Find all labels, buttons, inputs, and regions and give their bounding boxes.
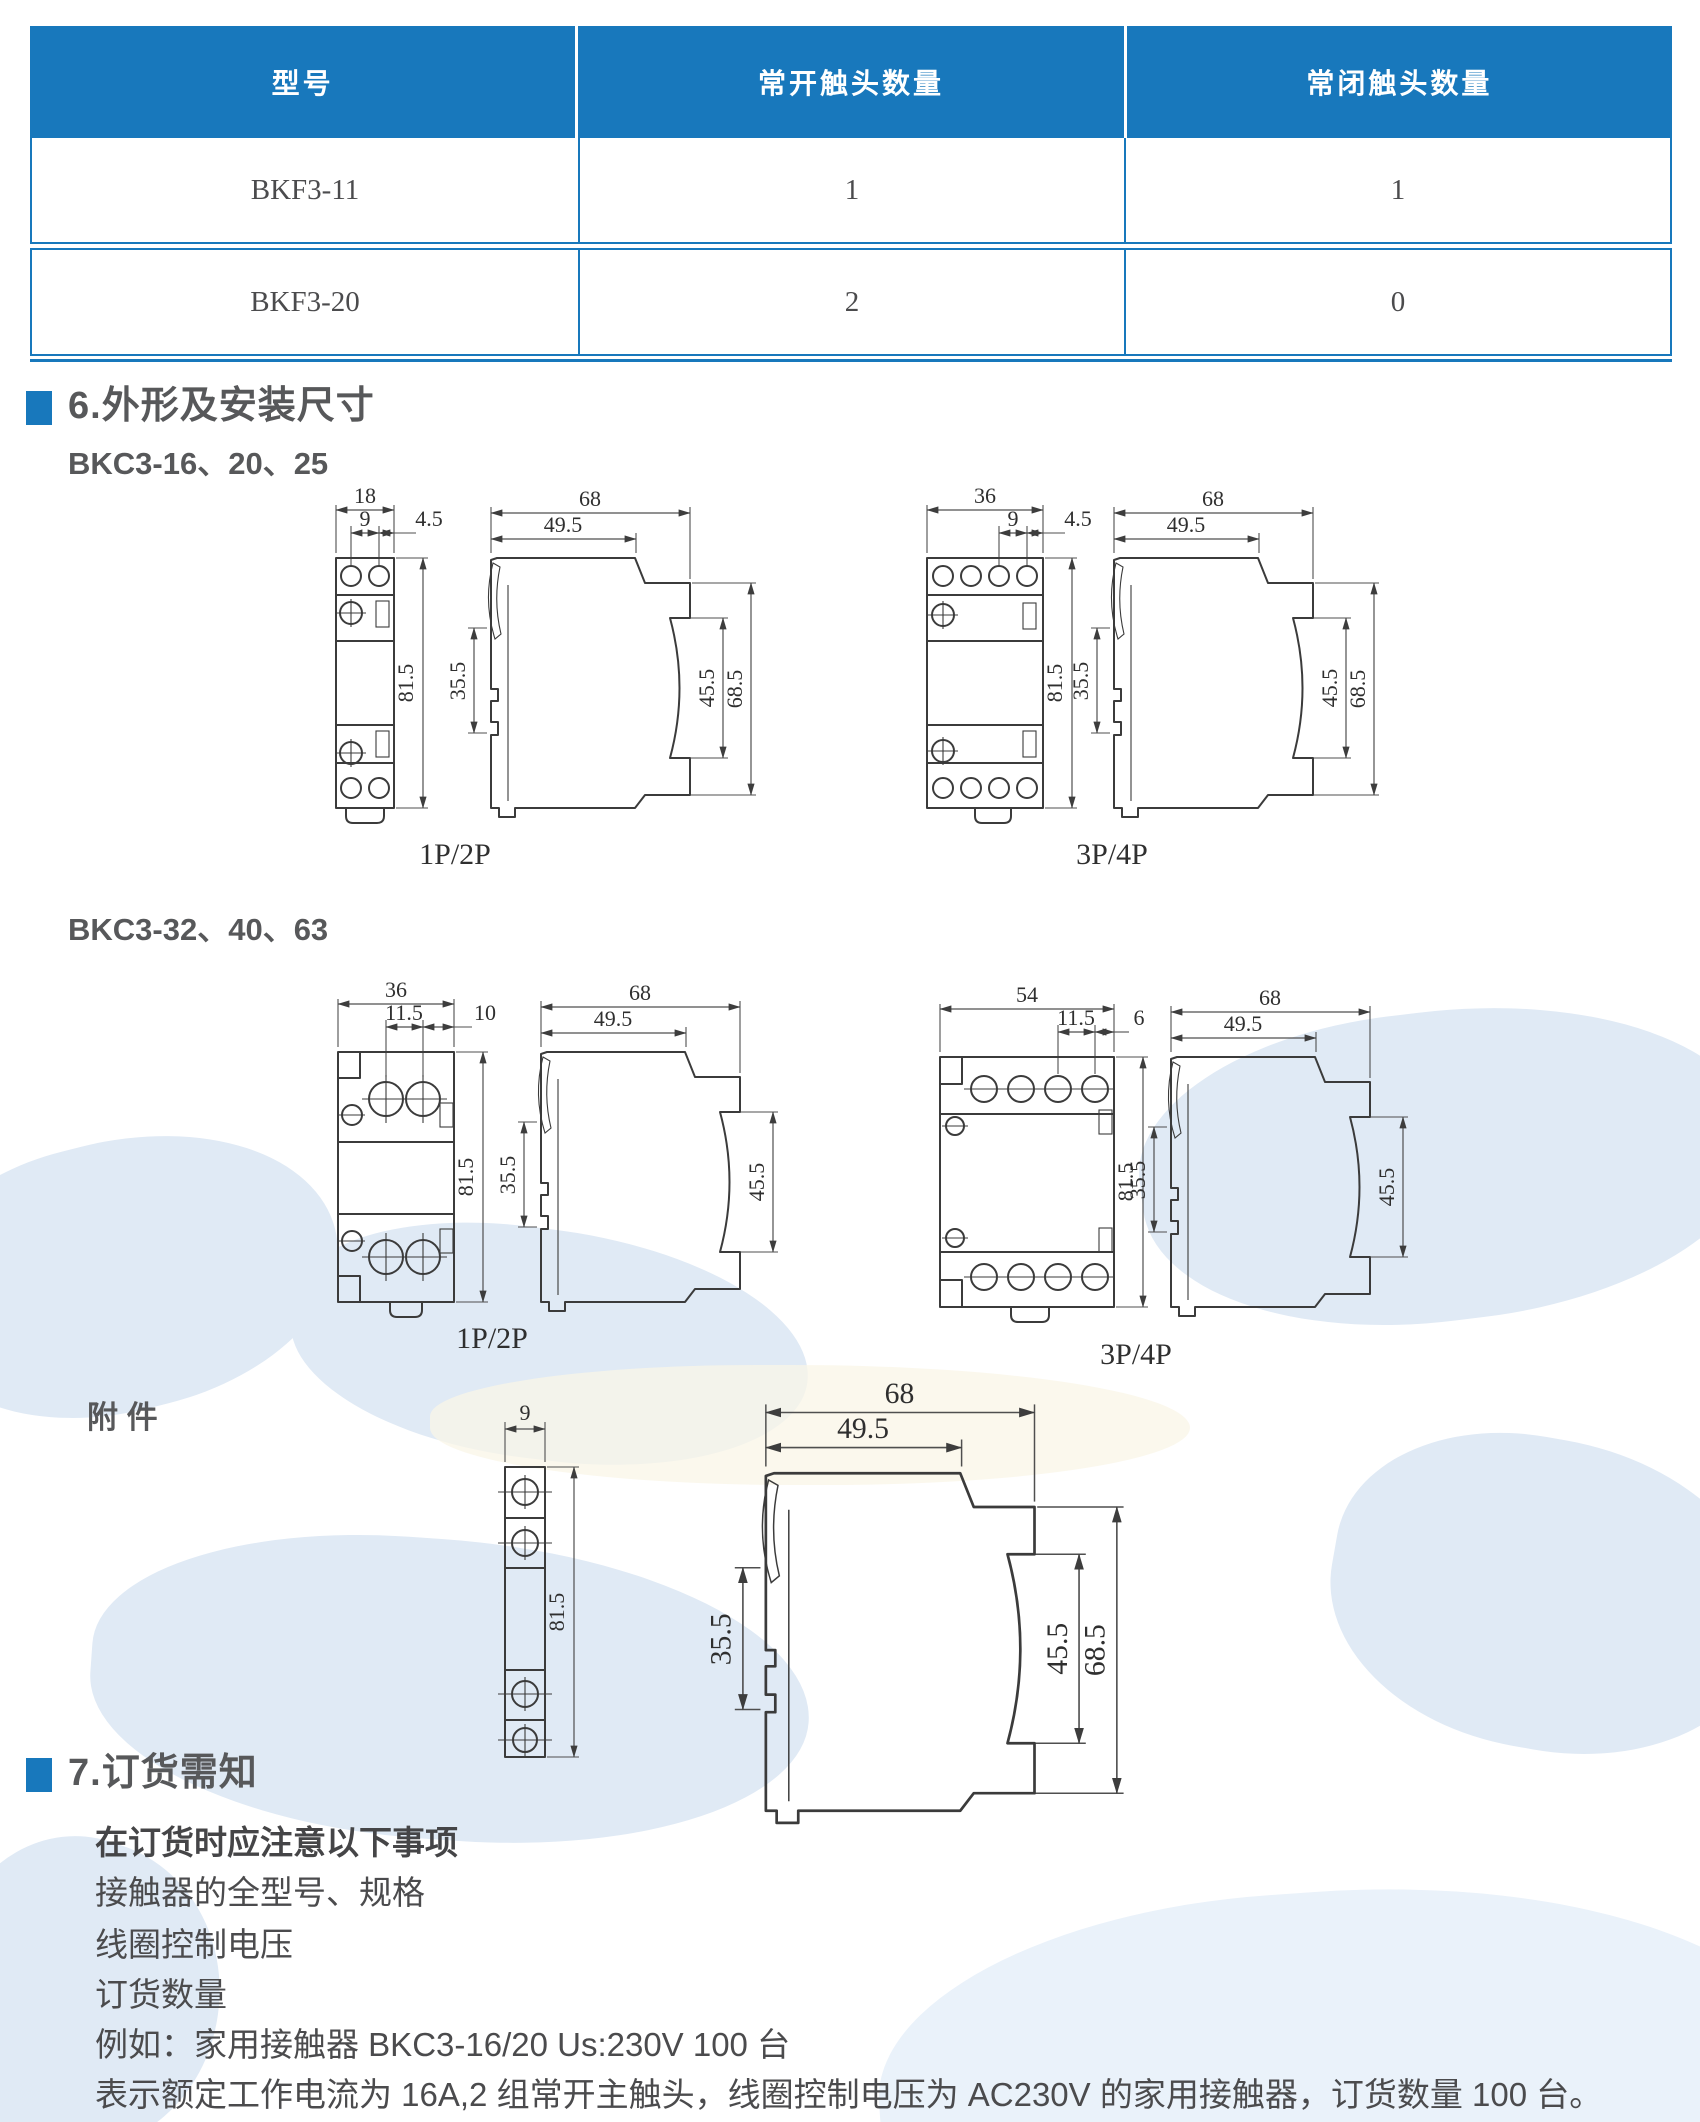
col-header-nc-contacts: 常闭触头数量 [1127,26,1672,138]
model-subheading-1: BKC3-16、20、25 [68,438,328,483]
svg-text:9: 9 [1008,506,1019,531]
side-view-drawing-3p4p-large: 68 49.5 35.5 45.5 [1115,962,1445,1362]
cell-model: BKF3-20 [32,250,578,354]
accessory-side-view: 68 49.5 35.5 45.5 68.5 [690,1345,1136,1885]
svg-text:36: 36 [385,977,407,1002]
contact-table-header: 型号 常开触头数量 常闭触头数量 [30,26,1672,138]
model-subheading-2: BKC3-32、40、63 [68,904,328,949]
svg-text:49.5: 49.5 [1167,512,1206,537]
svg-text:35.5: 35.5 [445,662,470,701]
ordering-item-line: 接触器的全型号、规格 [95,1866,425,1914]
side-view-drawing-3p4p: 68 49.5 35.5 45.5 68.5 [1058,463,1388,863]
section-7-heading: 7.订货需知 [26,1753,258,1795]
cell-nc-count: 1 [1124,138,1670,242]
col-header-model: 型号 [30,26,575,138]
pole-label-1p2p-large: 1P/2P [412,1322,572,1356]
cell-model: BKF3-11 [32,138,578,242]
svg-text:45.5: 45.5 [744,1163,769,1202]
accessory-front-view: 9 81.5 [450,1372,600,1792]
attachment-label: 附 件 [87,1392,158,1437]
svg-text:68: 68 [1202,486,1224,511]
svg-text:18: 18 [354,483,376,508]
svg-text:68: 68 [885,1378,915,1410]
svg-text:36: 36 [974,483,996,508]
svg-text:9: 9 [520,1400,531,1425]
svg-text:45.5: 45.5 [694,669,719,708]
svg-text:45.5: 45.5 [1374,1168,1399,1207]
section-7-title: 7.订货需知 [68,1753,258,1795]
section-6-title: 6.外形及安装尺寸 [68,386,375,428]
cell-nc-count: 0 [1124,250,1670,354]
cell-no-count: 1 [578,138,1124,242]
ordering-item-line: 订货数量 [95,1968,227,2016]
svg-text:68: 68 [629,980,651,1005]
pole-label-3p4p: 3P/4P [1032,838,1192,872]
pole-label-1p2p: 1P/2P [375,838,535,872]
svg-text:11.5: 11.5 [385,1000,423,1025]
table-row: BKF3-11 1 1 [30,138,1672,244]
svg-text:49.5: 49.5 [544,512,583,537]
svg-text:81.5: 81.5 [544,1593,569,1632]
svg-text:11.5: 11.5 [1057,1005,1095,1030]
section-bullet-square [26,391,52,425]
svg-text:35.5: 35.5 [706,1613,738,1665]
svg-text:35.5: 35.5 [495,1156,520,1195]
ordering-item-line: 线圈控制电压 [95,1918,293,1966]
svg-text:35.5: 35.5 [1068,662,1093,701]
table-row: BKF3-20 2 0 [30,248,1672,356]
svg-text:49.5: 49.5 [1224,1011,1263,1036]
watermark-blob [1306,1404,1700,1786]
svg-text:45.5: 45.5 [1042,1623,1074,1675]
svg-text:49.5: 49.5 [837,1413,889,1445]
datasheet-page: 型号 常开触头数量 常闭触头数量 BKF3-11 1 1 BKF3-20 2 0… [0,0,1700,2122]
svg-text:49.5: 49.5 [594,1006,633,1031]
side-view-drawing-1p2p: 68 49.5 35.5 45.5 68.5 [435,463,765,863]
contact-table: 型号 常开触头数量 常闭触头数量 BKF3-11 1 1 BKF3-20 2 0 [30,26,1672,362]
svg-text:81.5: 81.5 [453,1158,478,1197]
ordering-example-line: 例如：家用接触器 BKC3-16/20 Us:230V 100 台 [95,2018,790,2066]
svg-text:68.5: 68.5 [722,670,747,709]
table-bottom-rule [30,359,1672,362]
ordering-explanation-line: 表示额定工作电流为 16A,2 组常开主触头，线圈控制电压为 AC230V 的家… [95,2068,1602,2116]
ordering-notice-line: 在订货时应注意以下事项 [95,1816,458,1864]
svg-text:68: 68 [579,486,601,511]
svg-text:35.5: 35.5 [1125,1161,1150,1200]
svg-text:68: 68 [1259,985,1281,1010]
cell-no-count: 2 [578,250,1124,354]
svg-text:45.5: 45.5 [1317,669,1342,708]
svg-text:68.5: 68.5 [1345,670,1370,709]
svg-text:68.5: 68.5 [1080,1624,1112,1676]
section-6-heading: 6.外形及安装尺寸 [26,386,375,428]
svg-text:9: 9 [360,506,371,531]
section-bullet-square [26,1758,52,1792]
col-header-no-contacts: 常开触头数量 [578,26,1123,138]
svg-text:54: 54 [1016,982,1038,1007]
side-view-drawing-1p2p-large: 68 49.5 35.5 45.5 [485,957,815,1357]
svg-text:81.5: 81.5 [393,664,418,703]
